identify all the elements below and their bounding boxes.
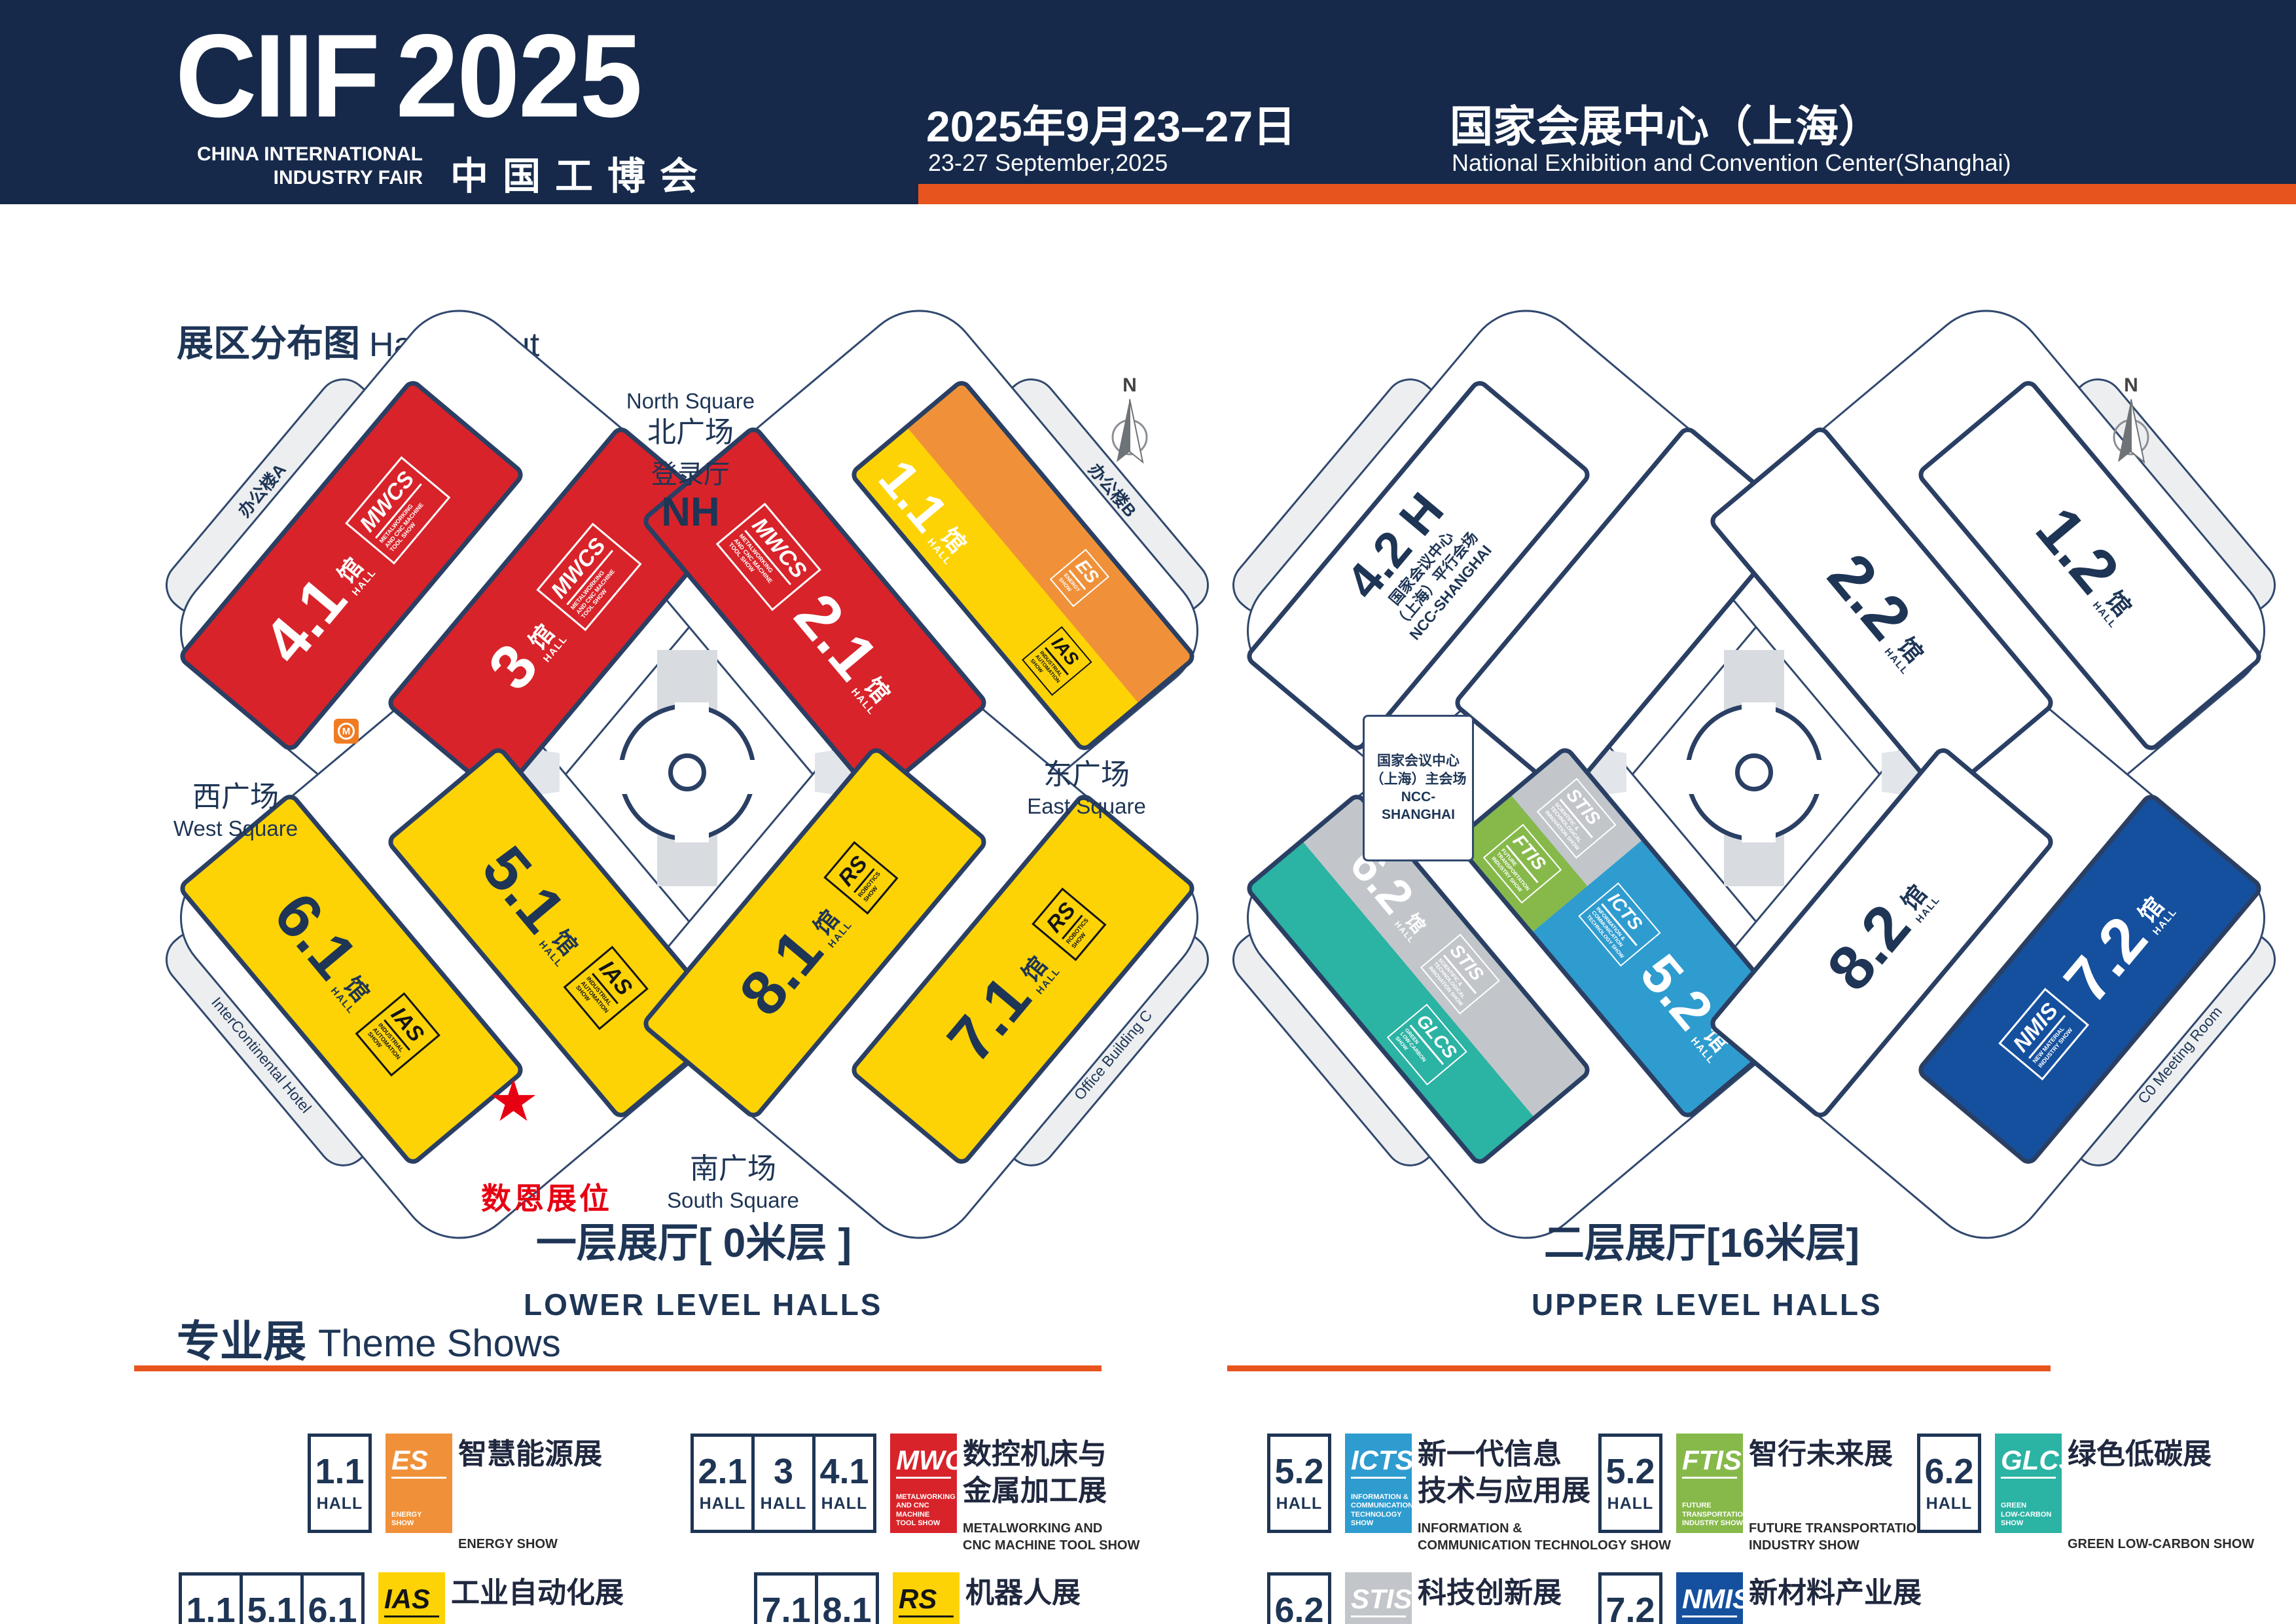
legend-hall-box: 7.1HALL [754,1572,818,1624]
legend-hall-box: 6.1HALL [300,1572,365,1624]
es-logo: ESENERGYSHOW [386,1434,452,1533]
theme-shows-title-cn: 专业展 [177,1317,306,1365]
hall-2-1-number: 2.1 [787,586,884,688]
legend-cn-title: 数控机床与金属加工展 [963,1436,1107,1510]
login-hall-code: NH [612,491,769,533]
ncc-line3: NCC-SHANGHAI [1365,788,1472,824]
poster-canvas: CIIF 2025 CHINA INTERNATIONAL INDUSTRY F… [0,0,2296,1624]
ias-logo: IASINDUSTRIALAUTOMATIONSHOW [1022,626,1092,696]
hall-8-1-label: 8.1 馆HALL [733,892,855,1024]
legend-hall-box: 1.1HALL [179,1572,243,1624]
header-date-cn: 2025年9月23–27日 [926,92,1296,154]
hall-6-1-number: 6.1 [267,886,364,987]
legend-en-title: ENERGY SHOW [458,1536,558,1553]
hall-8-2-label: 8.2 馆HALL [1821,867,1943,999]
legend-cn-title: 工业自动化展 [451,1575,624,1612]
compass-upper: N [2108,374,2155,466]
hall-7-2-label: 7.2 馆HALL [2058,879,2180,1011]
glcs-logo: GLCSGREENLOW-CARBONSHOW [1995,1434,2062,1533]
north-square-cn: 北广场 [612,414,769,450]
north-square-label: North Square 北广场 [612,388,769,450]
ncc-main-venue: 国家会议中心 （上海）主会场 NCC-SHANGHAI [1363,715,1474,861]
nmis-logo: NMISNEW MATERIALINDUSTRY SHOW [1998,988,2089,1080]
west-square-en: West Square [151,815,321,842]
mwcs-logo: MWCSMETALWORKINGAND CNC MACHINETOOL SHOW [890,1434,957,1533]
lower-caption-en: LOWER LEVEL HALLS [524,1287,864,1322]
lower-caption-cn: 一层展厅[ 0米层 ] [524,1210,864,1269]
legend-hall-box: 7.2HALL [1598,1572,1662,1624]
legend-en-title: FUTURE TRANSPORTATIONINDUSTRY SHOW [1749,1520,1926,1554]
upper-caption-en: UPPER LEVEL HALLS [1532,1287,1872,1322]
legend-en-title: METALWORKING ANDCNC MACHINE TOOL SHOW [963,1520,1139,1554]
ias-logo: IASINDUSTRIALAUTOMATIONSHOW [378,1572,445,1624]
header-date-en: 23-27 September,2025 [928,149,1168,177]
legend-hall-box: 8.1HALL [815,1572,879,1624]
legend-cn-title: 机器人展 [965,1575,1081,1612]
icts-logo: ICTSINFORMATION &COMMUNICATIONTECHNOLOGY… [1578,882,1661,967]
hall-7-1-number: 7.1 [941,969,1038,1070]
ciif-logo: CIIF 2025 [175,20,641,132]
central-hub-upper [1685,704,1823,841]
ias-logo: IASINDUSTRIALAUTOMATIONSHOW [355,992,440,1076]
hall-8-2-number: 8.2 [1821,897,1918,999]
legend-cn-title: 新材料产业展 [1749,1575,1922,1612]
hall-4-1-label: 4.1 馆HALL [257,540,379,672]
compass-needle-icon [1106,397,1153,469]
legend-en-title: GREEN LOW-CARBON SHOW [2068,1536,2254,1553]
upper-caption: 二层展厅[16米层] UPPER LEVEL HALLS [1532,1210,1872,1322]
hall-5-2-number: 5.2 [1634,948,1719,1036]
compass-lower: N [1106,374,1153,466]
legend-hall-box: 5.1HALL [240,1572,304,1624]
hall-8-1-number: 8.1 [733,922,830,1024]
divider-right [1227,1365,2051,1371]
header-venue-cn: 国家会展中心（上海） [1450,92,1882,154]
divider-left [134,1365,1102,1371]
nmis-logo: NMISNEW MATERIALINDUSTRY SHOW [1676,1572,1743,1624]
hall-2-2-label: 2.2 馆HALL [1821,547,1943,678]
hall-5-1-label: 5.1 馆HALL [475,839,598,971]
hall-6-1-label: 6.1 馆HALL [267,886,389,1017]
rs-logo: RSROBOTICSSHOW [893,1572,960,1624]
icts-logo: ICTSINFORMATION &COMMUNICATIONTECHNOLOGY… [1345,1434,1412,1533]
ciif-logo-text: CIIF [175,17,378,135]
legend-cn-title: 绿色低碳展 [2068,1436,2212,1473]
ftis-logo: FTISFUTURETRANSPORTATIONINDUSTRY SHOW [1676,1434,1743,1533]
hall-2-1-label: 2.1 馆HALL [787,586,910,718]
rs-logo: RSROBOTICSSHOW [1031,888,1106,962]
ncc-line1: 国家会议中心 [1377,752,1460,770]
legend-hall-box: 5.2HALL [1267,1434,1331,1533]
ciif-logo-en: CHINA INTERNATIONAL INDUSTRY FAIR [175,143,423,190]
west-square-cn: 西广场 [151,779,321,815]
legend-hall-box: 6.2HALL [1267,1572,1331,1624]
ciif-logo-en-line1: CHINA INTERNATIONAL [175,143,423,166]
compass-needle-icon [2108,397,2155,469]
legend-cn-title: 科技创新展 [1418,1575,1562,1612]
south-square-label: 南广场 South Square [648,1151,818,1214]
legend-hall-box: 2.1HALL [691,1434,755,1533]
login-hall-cn: 登录厅 [612,458,769,491]
legend-cn-title: 新一代信息技术与应用展 [1418,1436,1590,1510]
metro-icon: M [334,719,359,744]
hall-1-2-number: 1.2 [2029,500,2126,602]
stis-logo: STISSCIENTIFIC &TECHNOLOGICALINNOVATION … [1345,1572,1412,1624]
header-orange-bar [918,184,2296,204]
ciif-logo-en-line2: INDUSTRY FAIR [175,166,423,190]
mwcs-logo: MWCSMETALWORKINGAND CNC MACHINETOOL SHOW [345,456,450,565]
mwcs-logo: MWCSMETALWORKINGAND CNC MACHINETOOL SHOW [536,523,641,632]
lower-caption: 一层展厅[ 0米层 ] LOWER LEVEL HALLS [524,1210,864,1322]
legend-cn-title: 智行未来展 [1749,1436,1893,1473]
ias-logo: IASINDUSTRIALAUTOMATIONSHOW [563,945,649,1030]
legend-hall-box: 4.1HALL [812,1434,876,1533]
compass-n: N [1106,374,1153,397]
north-square-en: North Square [612,388,769,414]
hall-1-2-label: 1.2 馆HALL [2029,500,2151,632]
es-logo: ESENERGYSHOW [1050,549,1109,607]
ciif-logo-cn: 中国工博会 [450,145,712,200]
east-square-cn: 东广场 [1001,757,1172,793]
legend-hall-box: 5.2HALL [1598,1434,1662,1533]
hall-3-label: 3 馆HALL [482,607,570,698]
south-square-cn: 南广场 [648,1151,818,1187]
section-title-cn: 展区分布图 [177,323,360,364]
booth-star-icon: ★ [488,1072,539,1130]
compass-n: N [2108,374,2155,397]
east-square-en: East Square [1001,793,1172,820]
ncc-line2: （上海）主会场 [1371,770,1467,788]
hall-4-1-number: 4.1 [257,570,353,672]
legend-cn-title: 智慧能源展 [458,1436,602,1473]
hall-5-1-number: 5.1 [475,839,572,941]
upper-caption-cn: 二层展厅[16米层] [1532,1210,1872,1269]
legend-hall-box: 6.2HALL [1917,1434,1981,1533]
central-hub-lower [619,704,756,841]
theme-shows-title-en: Theme Shows [318,1322,561,1365]
rs-logo: RSROBOTICSSHOW [823,841,898,915]
legend-hall-box: 1.1HALL [308,1434,372,1533]
legend-hall-box: 3HALL [751,1434,816,1533]
hall-7-2-number: 7.2 [2058,909,2155,1011]
ciif-logo-year: 2025 [396,17,641,135]
hall-2-2-number: 2.2 [1821,547,1918,648]
hall-7-1-label: 7.1 馆HALL [941,939,1064,1070]
east-square-label: 东广场 East Square [1001,757,1172,820]
west-square-label: 西广场 West Square [151,779,321,842]
login-hall-label: 登录厅 NH [612,458,769,533]
header-venue-en: National Exhibition and Convention Cente… [1452,149,2011,177]
theme-shows-title: 专业展Theme Shows [177,1307,561,1369]
